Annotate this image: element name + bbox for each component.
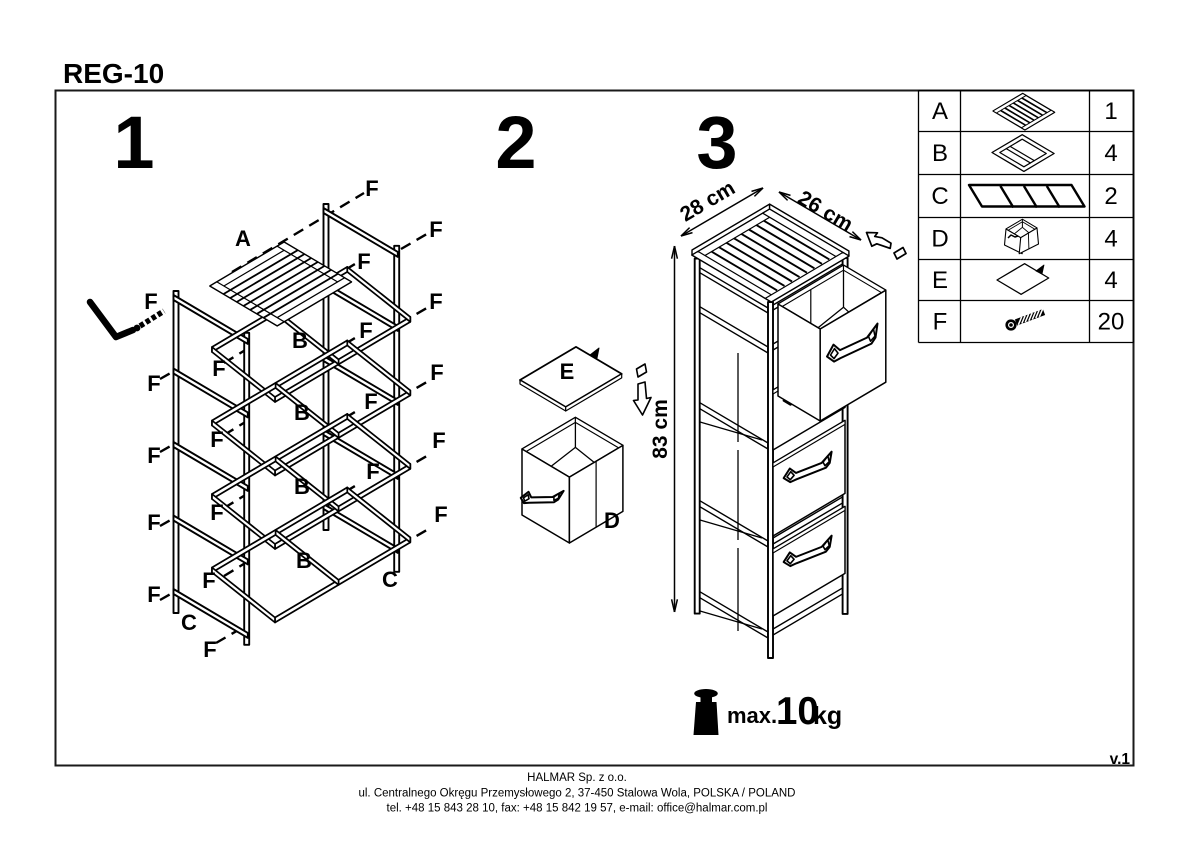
svg-text:F: F xyxy=(210,500,223,525)
svg-text:F: F xyxy=(147,510,160,535)
svg-text:A: A xyxy=(235,226,251,251)
svg-text:F: F xyxy=(147,443,160,468)
svg-text:F: F xyxy=(212,356,225,381)
svg-text:ul. Centralnego Okręgu Przemys: ul. Centralnego Okręgu Przemysłowego 2, … xyxy=(358,788,795,800)
svg-text:2: 2 xyxy=(1104,183,1117,210)
svg-text:A: A xyxy=(932,98,948,125)
svg-text:REG-10: REG-10 xyxy=(63,58,164,89)
svg-text:2: 2 xyxy=(495,101,536,184)
svg-text:C: C xyxy=(181,610,197,635)
svg-text:F: F xyxy=(933,309,948,336)
svg-text:B: B xyxy=(932,140,948,167)
svg-text:F: F xyxy=(203,637,216,662)
svg-text:C: C xyxy=(931,183,948,210)
svg-text:4: 4 xyxy=(1104,226,1117,253)
svg-text:F: F xyxy=(432,428,445,453)
svg-text:F: F xyxy=(366,459,379,484)
svg-text:F: F xyxy=(429,217,442,242)
svg-text:B: B xyxy=(294,400,310,425)
svg-text:3: 3 xyxy=(696,101,737,184)
svg-text:tel. +48 15 843 28 10, fax: +4: tel. +48 15 843 28 10, fax: +48 15 842 1… xyxy=(387,803,768,815)
svg-text:F: F xyxy=(430,360,443,385)
svg-text:max.: max. xyxy=(727,703,777,728)
svg-text:C: C xyxy=(382,567,398,592)
svg-text:20: 20 xyxy=(1098,309,1125,336)
svg-text:D: D xyxy=(931,226,948,253)
svg-text:1: 1 xyxy=(113,101,154,184)
svg-text:B: B xyxy=(296,548,312,573)
svg-text:83 cm: 83 cm xyxy=(649,399,672,459)
svg-text:HALMAR Sp. z o.o.: HALMAR Sp. z o.o. xyxy=(527,772,627,784)
svg-text:B: B xyxy=(294,474,310,499)
svg-text:E: E xyxy=(932,267,948,294)
svg-text:4: 4 xyxy=(1104,267,1117,294)
svg-text:F: F xyxy=(210,427,223,452)
svg-text:B: B xyxy=(292,328,308,353)
svg-text:F: F xyxy=(147,371,160,396)
svg-text:4: 4 xyxy=(1104,140,1117,167)
svg-text:F: F xyxy=(359,318,372,343)
svg-text:1: 1 xyxy=(1104,98,1117,125)
svg-text:kg: kg xyxy=(813,702,842,730)
svg-text:F: F xyxy=(147,582,160,607)
svg-text:E: E xyxy=(560,359,575,384)
svg-text:F: F xyxy=(202,568,215,593)
svg-text:v.1: v.1 xyxy=(1110,751,1131,768)
svg-text:F: F xyxy=(429,289,442,314)
svg-text:F: F xyxy=(364,389,377,414)
svg-text:F: F xyxy=(365,176,378,201)
svg-text:F: F xyxy=(434,502,447,527)
svg-text:D: D xyxy=(604,508,620,533)
svg-text:F: F xyxy=(357,249,370,274)
svg-text:F: F xyxy=(144,289,157,314)
